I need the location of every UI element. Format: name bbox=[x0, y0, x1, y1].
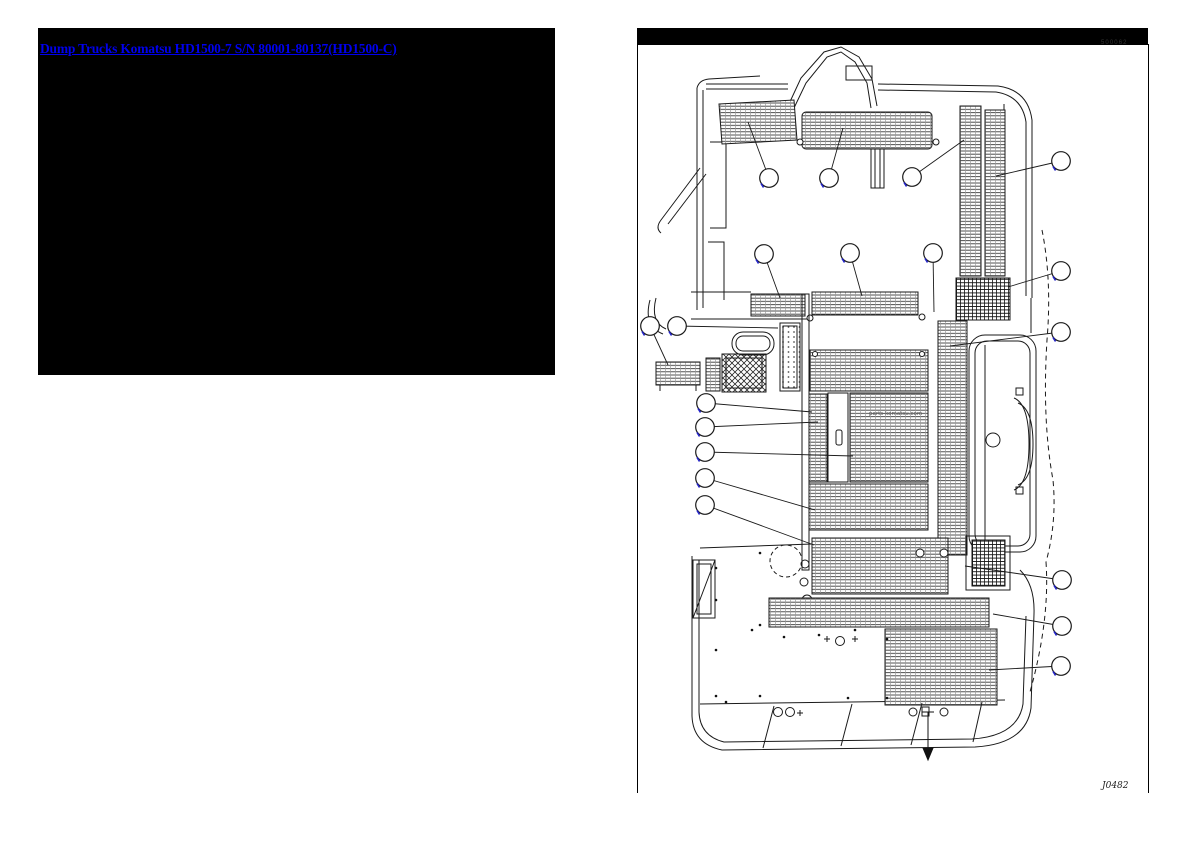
callout-balloon[interactable] bbox=[1052, 262, 1071, 281]
callout-balloon[interactable] bbox=[760, 169, 779, 188]
callout-balloon[interactable] bbox=[696, 418, 715, 437]
callout-balloon[interactable] bbox=[820, 169, 839, 188]
leader-line bbox=[705, 478, 815, 510]
leader-line bbox=[677, 326, 778, 328]
bottom-deck bbox=[692, 536, 1034, 750]
callout-balloon[interactable] bbox=[1053, 571, 1072, 590]
deck-parts-drawing: parts-komatsu.com bbox=[637, 28, 1153, 796]
parts-catalog-link[interactable]: Dump Trucks Komatsu HD1500-7 S/N 80001-8… bbox=[40, 41, 397, 57]
callout-balloon[interactable] bbox=[841, 244, 860, 263]
callout-balloon[interactable] bbox=[903, 168, 922, 187]
leader-line bbox=[996, 161, 1061, 176]
callout-balloon[interactable] bbox=[696, 496, 715, 515]
page: Dump Trucks Komatsu HD1500-7 S/N 80001-8… bbox=[0, 0, 1190, 842]
center-deck-panels bbox=[809, 321, 967, 555]
callout-balloon[interactable] bbox=[696, 443, 715, 462]
callout-balloon[interactable] bbox=[1052, 323, 1071, 342]
callout-balloon[interactable] bbox=[641, 317, 660, 336]
watermark: parts-komatsu.com bbox=[869, 411, 922, 417]
callout-balloon[interactable] bbox=[755, 245, 774, 264]
callout-balloon[interactable] bbox=[668, 317, 687, 336]
leader-line bbox=[989, 666, 1061, 670]
leader-line bbox=[705, 505, 814, 545]
catalog-link-panel: Dump Trucks Komatsu HD1500-7 S/N 80001-8… bbox=[38, 28, 555, 375]
callout-balloon[interactable] bbox=[1052, 152, 1071, 171]
drawing-code-top: 500062 bbox=[1101, 40, 1128, 46]
leader-line bbox=[993, 614, 1062, 626]
leader-line bbox=[706, 403, 812, 412]
callout-balloon[interactable] bbox=[696, 469, 715, 488]
callout-balloon[interactable] bbox=[1053, 617, 1072, 636]
direction-arrow bbox=[922, 712, 934, 760]
mid-deck-parts bbox=[648, 294, 809, 570]
callout-balloon[interactable] bbox=[697, 394, 716, 413]
anti-slip-mats bbox=[719, 100, 1010, 321]
callout-balloon[interactable] bbox=[1052, 657, 1071, 676]
leader-line bbox=[705, 422, 818, 427]
callout-balloon[interactable] bbox=[924, 244, 943, 263]
